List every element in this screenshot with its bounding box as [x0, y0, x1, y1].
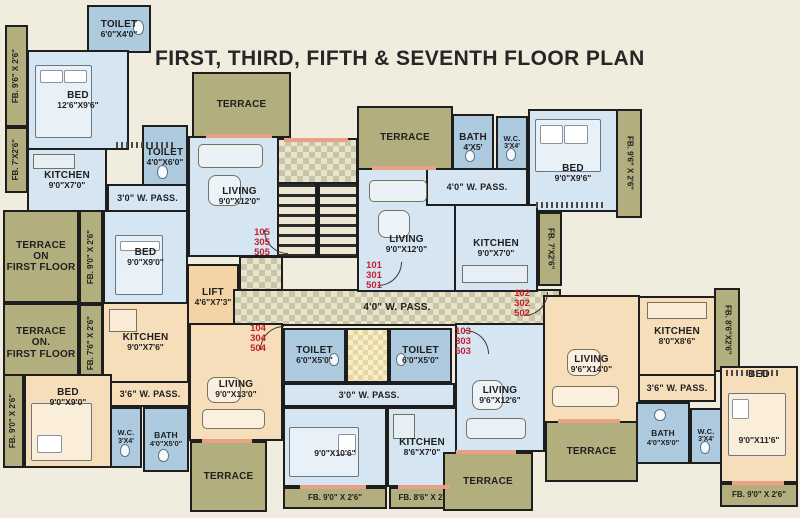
room-dims: 6'0"X5'0" — [296, 356, 333, 366]
threshold — [558, 419, 620, 423]
bedroom-103: BED 9'0"X10'6" — [283, 407, 387, 487]
bedroom-104: BED 9'0"X9'0" — [24, 374, 112, 468]
terrace-on-first-floor-2: TERRACE ON. FIRST FLOOR — [3, 303, 79, 383]
room-dims: 9'0"X11'6" — [739, 436, 780, 446]
kitchen-counter-icon — [33, 154, 75, 170]
fb-label: FB. 8'6"X2'6" — [723, 305, 732, 355]
bath-102: BATH 4'0"X5'0" — [636, 402, 690, 464]
toilet-icon — [157, 165, 168, 179]
room-name: TERRACE — [380, 132, 430, 143]
terrace-105: TERRACE — [192, 72, 291, 138]
room-dims: 4'0"X5'0" — [647, 439, 679, 447]
threshold — [206, 134, 272, 138]
passage-105: 3'0" W. PASS. — [107, 184, 188, 212]
terrace-on-first-floor-1: TERRACE ON FIRST FLOOR — [3, 210, 79, 303]
duct-shaft — [346, 328, 389, 383]
floor-plan: FIRST, THIRD, FIFTH & SEVENTH FLOOR PLAN… — [0, 0, 800, 518]
fb-label: FB. 9'6" X 2'6" — [12, 49, 21, 103]
kitchen-101: KITCHEN 9'0"X7'0" — [454, 204, 538, 292]
room-dims: 9'6"X12'6" — [479, 396, 520, 406]
flower-bed-right-2: FB. 7'X2'6" — [538, 212, 562, 286]
unit-number-101: 101 301 501 — [360, 261, 388, 291]
room-name: W.C. — [503, 135, 520, 143]
flower-bed-right-3: FB. 8'6"X2'6" — [714, 288, 740, 372]
room-dims: 4'0"X6'0" — [147, 158, 184, 168]
room-dims: 9'6"X14'0" — [571, 365, 612, 375]
room-dims: 4'X5' — [463, 143, 482, 153]
fb-label: FB. 9'0" X 2'6" — [732, 491, 786, 500]
bedroom-102: BED 9'0"X11'6" — [720, 366, 798, 483]
room-dims: 8'0"X8'6" — [659, 337, 696, 347]
staircase — [277, 182, 358, 258]
window-hatch — [536, 202, 606, 208]
bedroom-105-second: BED 9'0"X9'0" — [103, 210, 188, 304]
room-name: TERRACE ON. FIRST FLOOR — [7, 326, 76, 360]
lift: LIFT 4'6"X7'3" — [187, 264, 239, 330]
threshold — [732, 481, 784, 485]
kitchen-102: KITCHEN 8'0"X8'6" — [638, 296, 716, 376]
passage-label: 4'0" W. PASS. — [363, 302, 430, 313]
room-dims: 12'6"X9'6" — [57, 101, 98, 111]
flower-bed-left-4: FB. 7'6" X 2'6" — [79, 304, 103, 383]
sofa-icon — [552, 386, 619, 407]
unit-number-103: 103 303 503 — [449, 327, 477, 357]
unit-number-105: 105 305 505 — [248, 228, 276, 258]
room-name: TERRACE — [204, 471, 254, 482]
flower-bed-left-1: FB. 9'6" X 2'6" — [5, 25, 28, 127]
stair-flight — [320, 184, 356, 256]
room-dims: 9'0"X7'0" — [478, 249, 515, 259]
passage-label: 3'0" W. PASS. — [117, 193, 178, 203]
fb-label: FB. 9'0" X 2'6" — [308, 494, 362, 503]
terrace-104: TERRACE — [190, 441, 267, 512]
room-name: TERRACE — [567, 446, 617, 457]
flower-bed-right-1: FB. 9'6" X 2'6" — [616, 109, 642, 218]
room-dims: 3'X4' — [118, 438, 134, 446]
fb-label: FB. 9'6" X 2'6" — [625, 136, 634, 190]
room-name: W.C. — [697, 428, 714, 436]
kitchen-counter-icon — [109, 309, 137, 332]
page-title: FIRST, THIRD, FIFTH & SEVENTH FLOOR PLAN — [155, 47, 645, 71]
room-dims: 9'0"X13'0" — [215, 390, 256, 400]
sofa-icon — [466, 418, 526, 439]
room-dims: 3'X4' — [698, 436, 714, 444]
wc-104: W.C. 3'X4' — [110, 407, 142, 468]
kitchen-counter-icon — [462, 265, 528, 283]
room-dims: 9'0"X12'0" — [386, 245, 427, 255]
fb-label: FB. 7'6" X 2'6" — [87, 316, 96, 370]
threshold — [456, 450, 516, 454]
sofa-icon — [202, 409, 265, 428]
wc-101: W.C. 3'X4' — [496, 116, 528, 170]
toilet-103: TOILET 6'0"X5'0" — [389, 328, 452, 383]
room-dims: 4'0"X5'0" — [150, 440, 182, 448]
sofa-icon — [369, 180, 428, 203]
passage-label: 3'6" W. PASS. — [120, 389, 181, 399]
room-dims: 6'0"X4'0" — [101, 30, 138, 40]
bed-icon — [728, 393, 786, 456]
threshold — [202, 439, 252, 443]
bedroom-101: BED 9'0"X9'6" — [528, 109, 618, 212]
room-dims: 9'0"X9'0" — [50, 398, 87, 408]
room-name: TERRACE — [217, 99, 267, 110]
room-name: W.C. — [117, 429, 134, 437]
bedroom-105-main: BED 12'6"X9'6" — [27, 50, 129, 150]
kitchen-counter-icon — [393, 414, 415, 440]
living-102: LIVING 9'6"X14'0" — [543, 295, 640, 423]
flower-bed-bottom-1: FB. 9'0" X 2'6" — [283, 487, 387, 509]
bed-icon — [31, 403, 91, 461]
threshold — [372, 166, 436, 170]
unit-number-102: 102 302 502 — [508, 289, 536, 319]
bath-101: BATH 4'X5' — [452, 114, 494, 170]
threshold — [284, 138, 348, 142]
passage-103: 3'0" W. PASS. — [283, 383, 455, 407]
passage-label: 4'0" W. PASS. — [447, 182, 508, 192]
toilet-104: TOILET 6'0"X5'0" — [283, 328, 346, 383]
stair-landing — [277, 138, 358, 184]
window-hatch — [726, 370, 781, 376]
room-dims: 9'0"X12'0" — [219, 197, 260, 207]
room-dims: 9'0"X7'6" — [127, 343, 164, 353]
sofa-icon — [198, 144, 263, 169]
flower-bed-bottom-3: FB. 9'0" X 2'6" — [720, 483, 798, 507]
room-dims: 3'X4' — [504, 143, 520, 151]
room-dims: 6'0"X5'0" — [402, 356, 439, 366]
flower-bed-left-5: FB. 9'0" X 2'6" — [3, 374, 24, 468]
fb-label: FB. 7'X2'6" — [546, 228, 555, 269]
room-dims: 9'0"X9'0" — [127, 258, 164, 268]
toilet-room-top: TOILET 6'0"X4'0" — [87, 5, 151, 53]
bath-fixture-icon — [158, 449, 169, 462]
bath-fixture-icon — [654, 409, 666, 421]
kitchen-104: KITCHEN 9'0"X7'6" — [102, 302, 189, 383]
flower-bed-left-3: FB. 9'0" X 2'6" — [79, 210, 103, 304]
passage-label: 3'6" W. PASS. — [647, 383, 708, 393]
toilet-105: TOILET 4'0"X6'0" — [142, 125, 188, 189]
window-hatch — [116, 142, 174, 148]
kitchen-counter-icon — [647, 302, 706, 319]
terrace-103: TERRACE — [443, 452, 533, 511]
room-dims: 9'0"X9'6" — [555, 174, 592, 184]
toilet-icon — [120, 444, 130, 457]
room-dims: 9'0"X10'6" — [314, 449, 355, 459]
passage-104: 3'6" W. PASS. — [110, 381, 190, 407]
room-dims: 8'6"X7'0" — [404, 448, 441, 458]
kitchen-105: KITCHEN 9'0"X7'0" — [27, 148, 107, 212]
wc-102: W.C. 3'X4' — [690, 408, 722, 464]
passage-102: 3'6" W. PASS. — [638, 374, 716, 402]
fb-label: FB. 9'0" X 2'6" — [9, 394, 18, 448]
passage-101: 4'0" W. PASS. — [426, 168, 528, 206]
passage-label: 3'0" W. PASS. — [339, 390, 400, 400]
room-dims: 4'6"X7'3" — [195, 298, 232, 308]
room-name: TERRACE ON FIRST FLOOR — [7, 240, 76, 274]
fb-label: FB. 9'0" X 2'6" — [87, 230, 96, 284]
threshold — [300, 485, 366, 489]
terrace-101: TERRACE — [357, 106, 453, 170]
flower-bed-left-2: FB. 7'X2'6" — [5, 127, 28, 193]
fb-label: FB. 7'X2'6" — [12, 139, 21, 180]
threshold — [398, 485, 450, 489]
terrace-102: TERRACE — [545, 421, 638, 482]
room-name: TERRACE — [463, 476, 513, 487]
room-dims: 9'0"X7'0" — [49, 181, 86, 191]
bath-104: BATH 4'0"X5'0" — [143, 407, 189, 472]
unit-number-104: 104 304 504 — [244, 324, 272, 354]
corridor-connector — [239, 256, 283, 292]
